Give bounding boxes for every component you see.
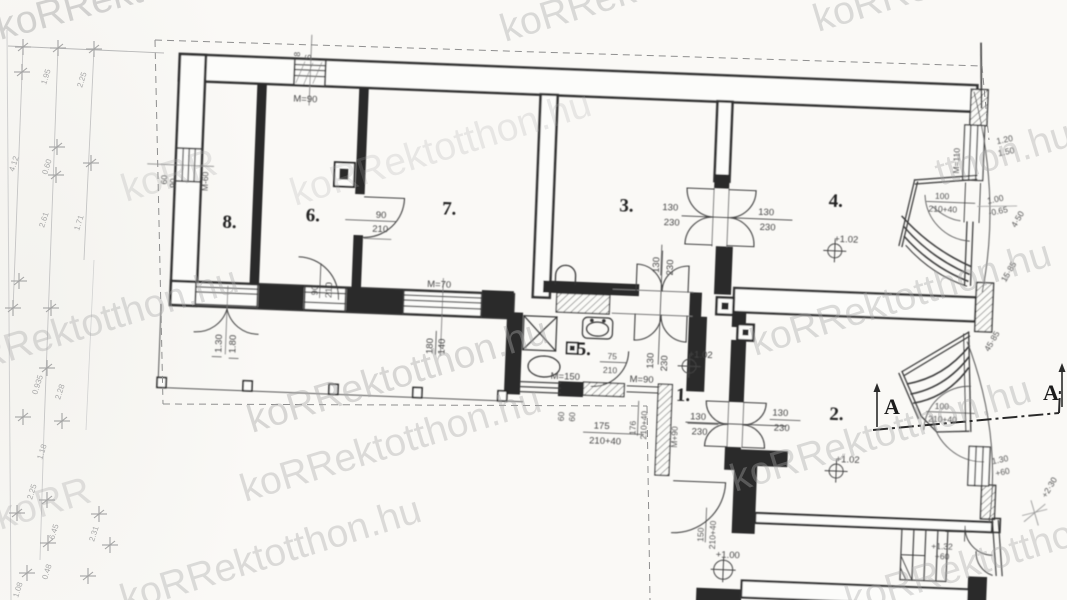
svg-text:+1.02: +1.02 [834, 234, 858, 246]
svg-text:3.: 3. [619, 195, 634, 217]
svg-text:176: 176 [627, 420, 638, 435]
svg-text:1.80: 1.80 [227, 335, 239, 354]
svg-text:230: 230 [691, 426, 707, 438]
svg-text:210+40: 210+40 [928, 204, 957, 215]
svg-text:210: 210 [372, 224, 388, 236]
svg-text:210: 210 [324, 282, 336, 298]
svg-text:210+40: 210+40 [707, 520, 718, 549]
svg-text:8: 8 [292, 51, 302, 56]
svg-text:130: 130 [662, 202, 678, 214]
svg-text:230: 230 [665, 259, 677, 275]
svg-text:S: S [303, 54, 313, 60]
svg-text:130: 130 [690, 411, 706, 423]
svg-text:8.: 8. [222, 212, 237, 234]
svg-text:+1.02: +1.02 [688, 349, 712, 361]
svg-text:210+40: 210+40 [589, 435, 621, 447]
svg-text:M+90: M+90 [669, 426, 680, 448]
svg-text:130: 130 [772, 408, 788, 420]
svg-text:90: 90 [376, 210, 387, 221]
svg-text:150: 150 [695, 527, 706, 542]
svg-text:M=90: M=90 [293, 93, 317, 105]
svg-text:210: 210 [603, 365, 618, 376]
svg-text:230: 230 [774, 423, 790, 435]
svg-text:A: A [1043, 380, 1059, 405]
svg-text:4.: 4. [828, 191, 843, 213]
svg-text:7.: 7. [442, 198, 457, 220]
svg-text:130: 130 [645, 353, 657, 369]
svg-text:2.: 2. [829, 404, 844, 426]
svg-text:230: 230 [759, 222, 775, 234]
svg-text:230: 230 [664, 217, 680, 229]
svg-text:175: 175 [593, 421, 609, 433]
svg-text:5.: 5. [576, 339, 591, 361]
svg-text:+1.00: +1.00 [716, 549, 740, 561]
svg-text:130: 130 [758, 207, 774, 219]
svg-text:230: 230 [659, 355, 671, 371]
svg-text:M=150: M=150 [550, 371, 580, 383]
svg-text:M=70: M=70 [427, 279, 451, 291]
svg-text:60: 60 [567, 412, 577, 422]
svg-text:1.30: 1.30 [213, 334, 225, 353]
svg-text:M=90: M=90 [629, 374, 653, 386]
svg-text:1.: 1. [676, 385, 691, 407]
svg-text:60: 60 [556, 411, 566, 421]
svg-text:75: 75 [607, 351, 617, 361]
